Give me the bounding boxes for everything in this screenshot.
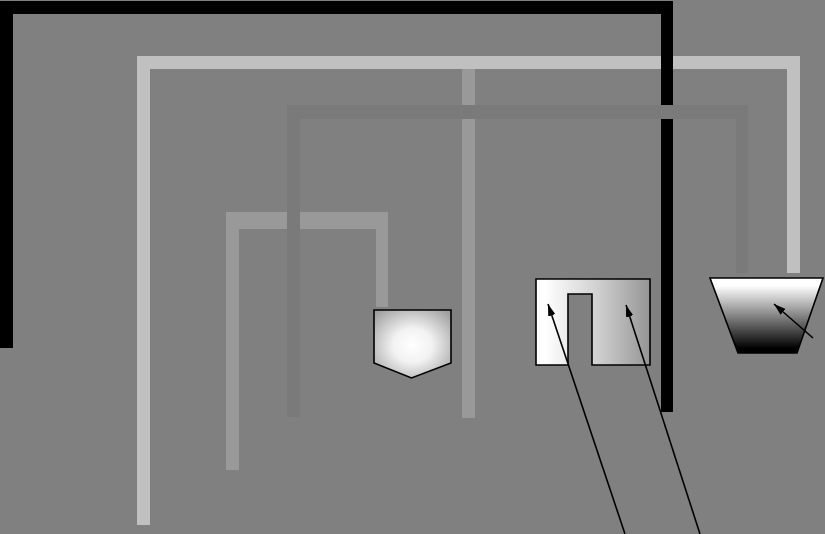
- light-gray-wall-segment: [787, 56, 800, 273]
- black-wall-segment: [0, 1, 673, 14]
- light-gray-wall-segment: [137, 56, 150, 525]
- dark-gray-wall-segment: [287, 105, 300, 417]
- dark-gray-wall-segment: [736, 105, 748, 273]
- background: [0, 0, 825, 534]
- medium-gray-wall-segment: [226, 212, 388, 229]
- staple-shape: [536, 279, 650, 365]
- dark-gray-wall-segment: [287, 105, 748, 119]
- black-wall-segment: [0, 1, 13, 348]
- medium-gray-wall-segment: [226, 212, 239, 470]
- pentagon-shape: [374, 310, 451, 378]
- diagram-stage: [0, 0, 825, 534]
- black-wall-segment: [661, 14, 673, 412]
- medium-gray-wall-segment: [376, 212, 388, 307]
- medium-gray-wall-segment: [462, 69, 475, 418]
- maze-diagram-canvas: [0, 0, 825, 534]
- light-gray-wall-segment: [137, 56, 800, 69]
